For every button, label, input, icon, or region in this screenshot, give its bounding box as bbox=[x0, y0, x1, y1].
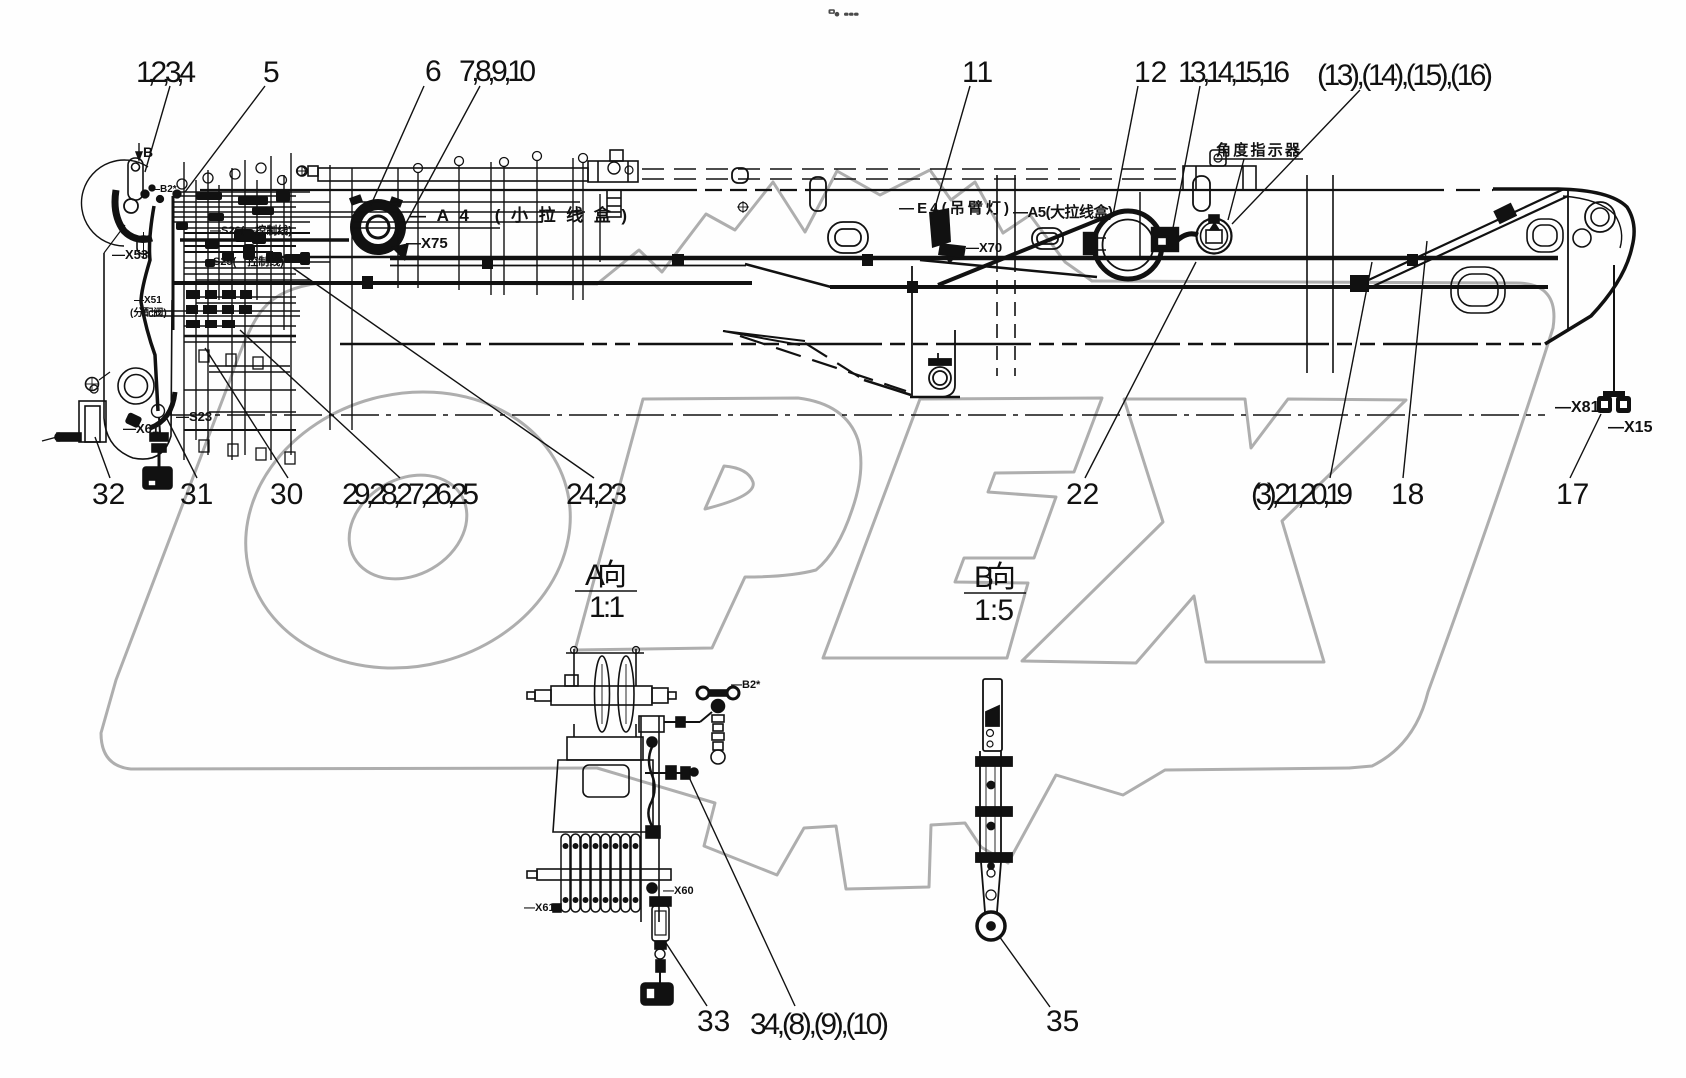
svg-text:(3),21,20,19: (3),21,20,19 bbox=[1251, 478, 1353, 511]
svg-text:12: 12 bbox=[1134, 56, 1167, 89]
svg-text:—X61: —X61 bbox=[123, 421, 159, 436]
svg-text:—X61: —X61 bbox=[524, 902, 555, 914]
svg-text:角度指示器: 角度指示器 bbox=[1216, 141, 1301, 159]
svg-text:33: 33 bbox=[697, 1005, 730, 1038]
svg-text:—X53: —X53 bbox=[112, 247, 148, 262]
svg-text:34,(8),(9),(10): 34,(8),(9),(10) bbox=[750, 1008, 889, 1041]
svg-text:6: 6 bbox=[425, 55, 442, 88]
svg-text:13,14,15,16: 13,14,15,16 bbox=[1178, 56, 1290, 89]
svg-text:17: 17 bbox=[1556, 478, 1589, 511]
svg-text:7,8,9,10: 7,8,9,10 bbox=[459, 55, 536, 88]
svg-text:1:1: 1:1 bbox=[589, 591, 625, 624]
svg-text:11: 11 bbox=[962, 56, 993, 89]
svg-text:—X60: —X60 bbox=[663, 885, 694, 897]
svg-text:18: 18 bbox=[1391, 478, 1424, 511]
svg-text:—B2*: —B2* bbox=[150, 184, 177, 195]
svg-text:30: 30 bbox=[270, 478, 303, 511]
svg-text:A向: A向 bbox=[585, 559, 627, 592]
svg-text:5: 5 bbox=[263, 56, 280, 89]
svg-text:1:5: 1:5 bbox=[974, 594, 1014, 627]
svg-text:—X15: —X15 bbox=[1608, 419, 1653, 436]
svg-text:22: 22 bbox=[1066, 478, 1099, 511]
svg-text:—B2*: —B2* bbox=[731, 679, 761, 691]
svg-text:—S23: —S23 bbox=[176, 409, 212, 424]
svg-text:35: 35 bbox=[1046, 1005, 1079, 1038]
svg-text:B: B bbox=[143, 144, 153, 160]
svg-text:—S25(—控制线): —S25(—控制线) bbox=[202, 254, 284, 268]
svg-text:—S26(—控制线): —S26(—控制线) bbox=[210, 223, 292, 237]
svg-text:(分配阀): (分配阀) bbox=[130, 306, 167, 319]
svg-text:—X51: —X51 bbox=[134, 295, 162, 306]
svg-text:—X70: —X70 bbox=[966, 240, 1002, 255]
svg-text:—A5(大拉线盒): —A5(大拉线盒) bbox=[1013, 203, 1113, 221]
svg-text:B向: B向 bbox=[974, 561, 1016, 594]
svg-text:31: 31 bbox=[180, 478, 213, 511]
svg-text:1,2,3,4: 1,2,3,4 bbox=[136, 56, 196, 89]
svg-text:(13),(14),(15),(16): (13),(14),(15),(16) bbox=[1317, 59, 1493, 92]
svg-text:—A4 (小拉线盒): —A4 (小拉线盒) bbox=[409, 205, 627, 225]
svg-text:29,28,27,26,25: 29,28,27,26,25 bbox=[342, 478, 479, 511]
svg-text:32: 32 bbox=[92, 478, 125, 511]
svg-text:24,23: 24,23 bbox=[566, 478, 627, 511]
svg-text:—X75: —X75 bbox=[406, 235, 448, 252]
svg-text:—X81: —X81 bbox=[1555, 399, 1600, 416]
